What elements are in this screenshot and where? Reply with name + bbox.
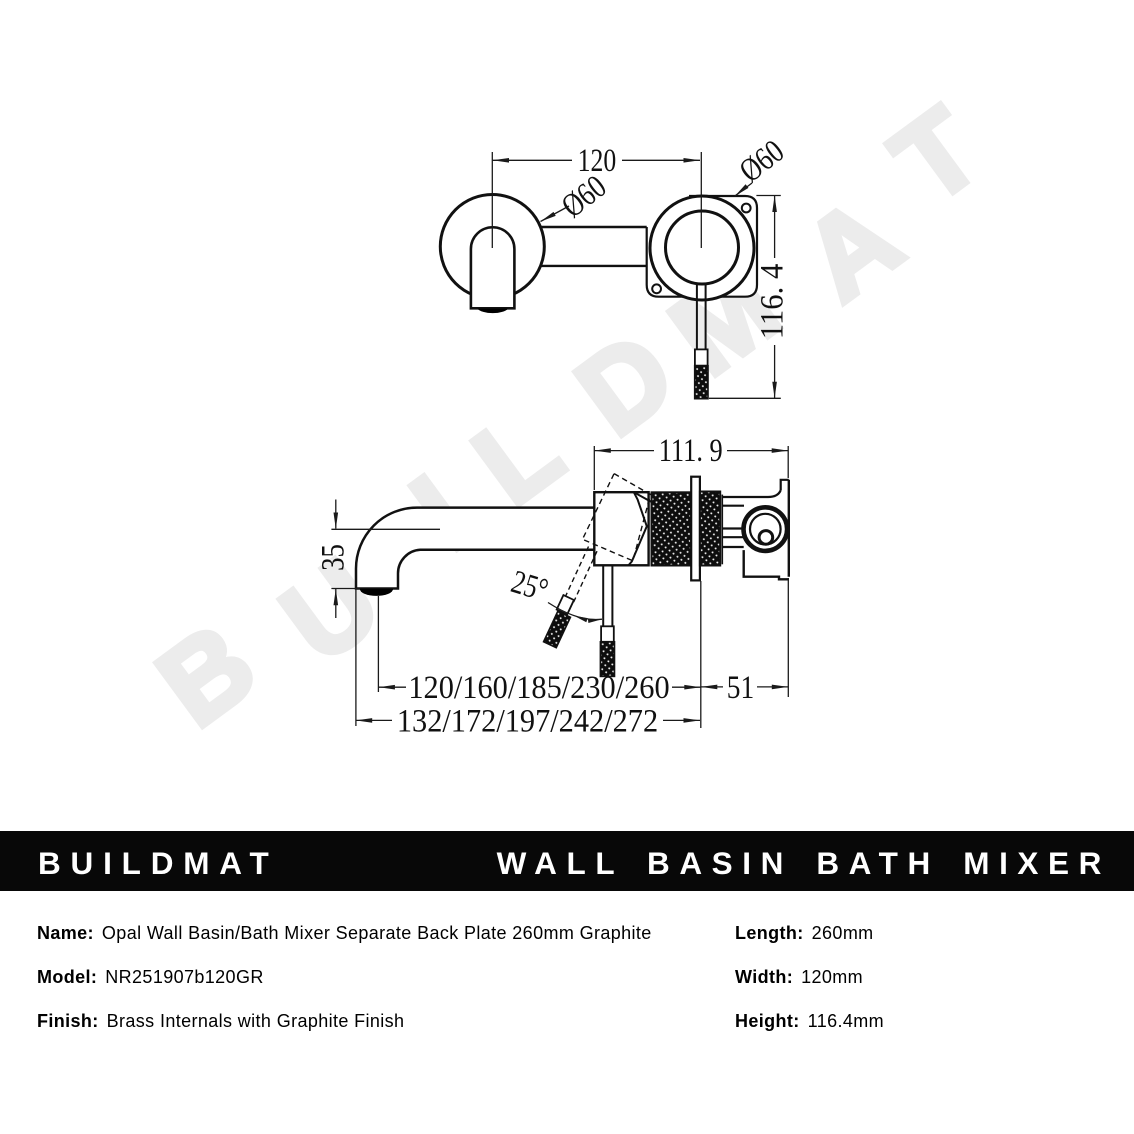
svg-text:51: 51 [727, 669, 754, 706]
svg-text:111. 9: 111. 9 [659, 432, 723, 468]
svg-text:T: T [871, 84, 1002, 228]
svg-text:B: B [136, 600, 278, 751]
svg-text:120/160/185/230/260: 120/160/185/230/260 [408, 669, 669, 705]
svg-text:116. 4: 116. 4 [754, 264, 790, 340]
svg-text:A: A [781, 174, 923, 325]
svg-text:Ø60: Ø60 [733, 133, 791, 190]
svg-text:35: 35 [315, 544, 351, 571]
svg-text:25°: 25° [507, 564, 552, 609]
svg-text:132/172/197/242/272: 132/172/197/242/272 [397, 702, 658, 738]
